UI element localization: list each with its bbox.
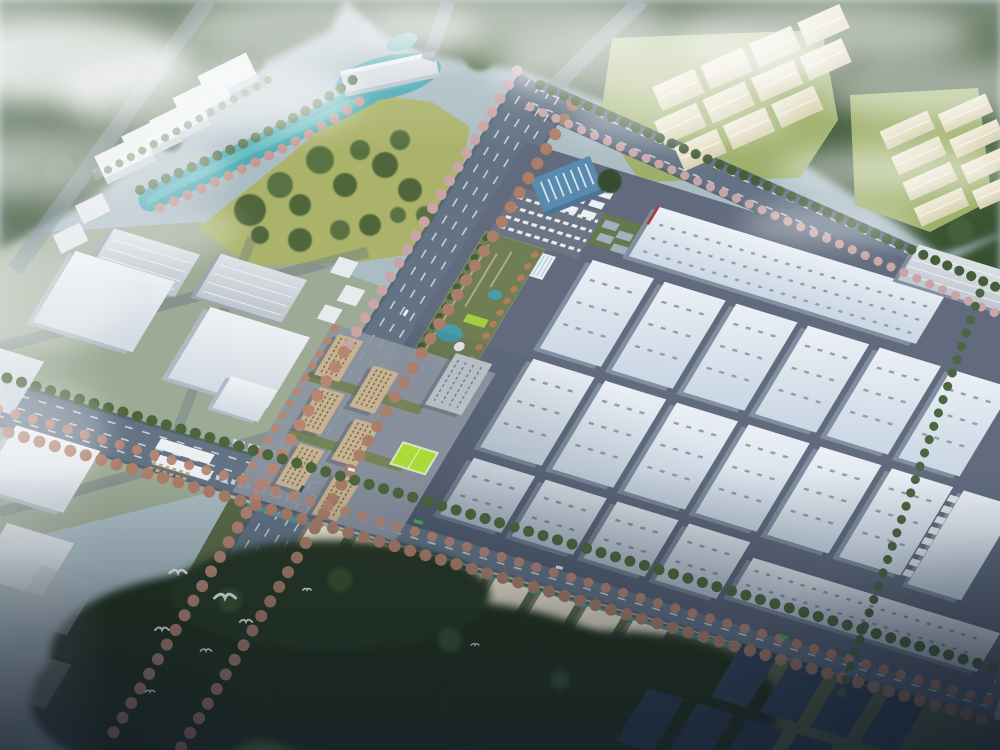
cool-tint bbox=[0, 0, 1000, 750]
scene-canvas bbox=[0, 0, 1000, 750]
aerial-rendering-image bbox=[0, 0, 1000, 750]
